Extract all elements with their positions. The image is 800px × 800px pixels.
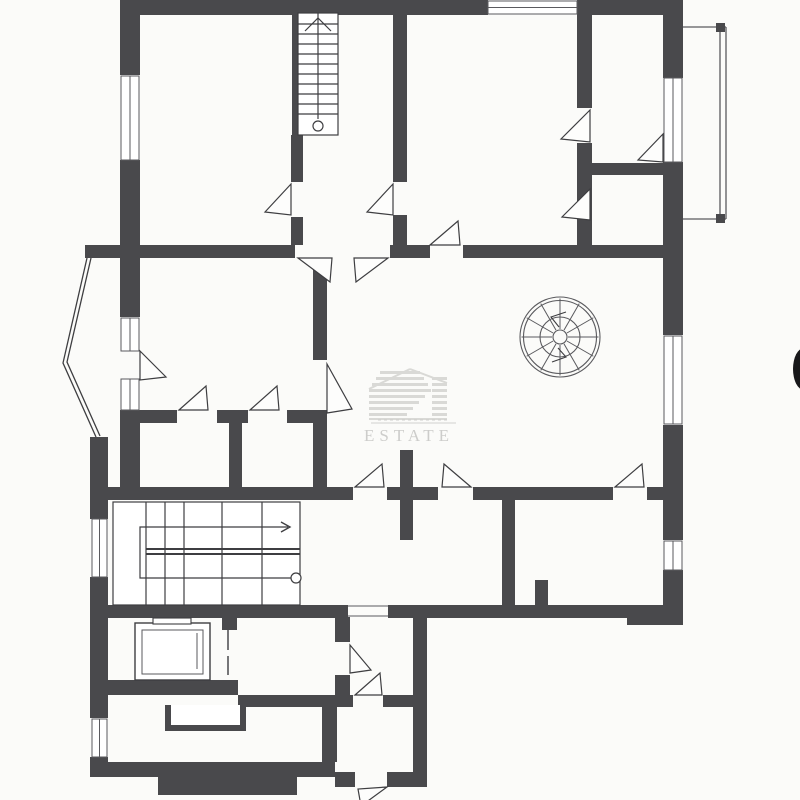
wall (535, 580, 548, 607)
wall (577, 0, 683, 15)
wall (222, 617, 237, 630)
watermark-tagline-mark (378, 419, 381, 421)
wall (387, 772, 413, 787)
wall (663, 15, 683, 78)
door-swing (265, 184, 291, 215)
door-swing (430, 221, 460, 245)
wall (85, 245, 295, 258)
wall (473, 487, 613, 500)
door-swing (250, 386, 279, 410)
bay-window-glass (63, 258, 96, 437)
door-swing (140, 351, 166, 380)
wall (291, 135, 303, 182)
wall (400, 450, 413, 487)
door-swing (442, 464, 471, 487)
watermark-tagline-mark (384, 419, 387, 421)
wall (120, 410, 177, 423)
watermark-bar (369, 401, 419, 404)
watermark-tagline-mark (432, 419, 435, 421)
wall (388, 605, 663, 618)
watermark-roof-line (410, 369, 447, 383)
edge-crescent-mark (793, 348, 800, 390)
door-swing (562, 189, 590, 220)
bay-window (63, 258, 100, 437)
fireplace-outer (135, 623, 210, 680)
watermark-brand-text: ESTATE (364, 426, 454, 445)
watermark-bar (369, 395, 425, 398)
watermark-tagline-mark (390, 419, 393, 421)
fireplace-vent (153, 618, 191, 624)
wall (108, 605, 348, 618)
wall (120, 250, 140, 317)
spiral-circle (553, 330, 567, 344)
wall (229, 423, 242, 498)
wall (335, 772, 355, 787)
watermark-bar (376, 377, 424, 380)
door-swing (367, 184, 393, 215)
wall (287, 410, 327, 423)
wall (663, 498, 683, 540)
wall-niche (168, 705, 243, 728)
stair-start-marker (291, 573, 301, 583)
wall (335, 675, 350, 695)
wall (663, 258, 683, 335)
wall (413, 617, 427, 787)
wall (502, 500, 515, 607)
wall (158, 777, 297, 795)
door-swing (561, 110, 590, 142)
wall (577, 15, 592, 108)
watermark-tagline-mark (426, 419, 429, 421)
wall (393, 215, 407, 245)
spiral-staircase (520, 297, 600, 377)
wall (90, 577, 108, 718)
door-swing (355, 464, 384, 487)
balcony (683, 23, 726, 223)
wall (291, 217, 303, 245)
wall (322, 707, 337, 762)
door-swing (615, 464, 644, 487)
wall (400, 500, 413, 540)
watermark-bar (432, 395, 447, 398)
balcony-post (716, 214, 725, 223)
watermark-bar (432, 401, 447, 404)
wall (292, 13, 298, 135)
watermark-tagline-mark (420, 419, 423, 421)
floor-plan-drawing: ESTATE (0, 0, 800, 800)
watermark-tagline-mark (438, 419, 441, 421)
wall (387, 487, 438, 500)
door-swing (350, 645, 371, 673)
wall (313, 415, 327, 498)
wall (592, 163, 663, 175)
watermark-tagline-mark (408, 419, 411, 421)
wall (393, 15, 407, 182)
wall (93, 487, 353, 500)
spiral-arrow (552, 348, 566, 362)
wall (90, 437, 108, 519)
balcony-post (716, 23, 725, 32)
watermark-bar (369, 407, 413, 410)
wall (335, 617, 350, 642)
door-swing (327, 364, 352, 413)
watermark-logo (369, 369, 456, 423)
wall (120, 160, 140, 250)
watermark-bar (432, 407, 447, 410)
wall (108, 680, 238, 695)
wall (90, 762, 335, 777)
door-swing (354, 258, 388, 282)
watermark-bar (432, 383, 447, 386)
floor-plan-page: ESTATE (0, 0, 800, 800)
watermark-tagline-mark (402, 419, 405, 421)
door-swing (179, 386, 208, 410)
watermark-tagline-mark (414, 419, 417, 421)
watermark-bar (432, 389, 447, 392)
watermark-bar (432, 413, 447, 416)
door-swing (355, 673, 382, 695)
staircases-layer (113, 13, 338, 605)
door-swing (638, 134, 663, 162)
wall (390, 245, 430, 258)
wall (627, 605, 683, 625)
watermark-bar (369, 413, 407, 416)
door-swing (358, 787, 387, 800)
watermark-bar (369, 389, 431, 392)
wall (663, 162, 683, 258)
wall (463, 245, 683, 258)
wall (238, 695, 353, 707)
watermark-tagline-mark (396, 419, 399, 421)
watermark-tagline-mark (444, 419, 447, 421)
wall (120, 15, 140, 75)
wall (217, 410, 248, 423)
